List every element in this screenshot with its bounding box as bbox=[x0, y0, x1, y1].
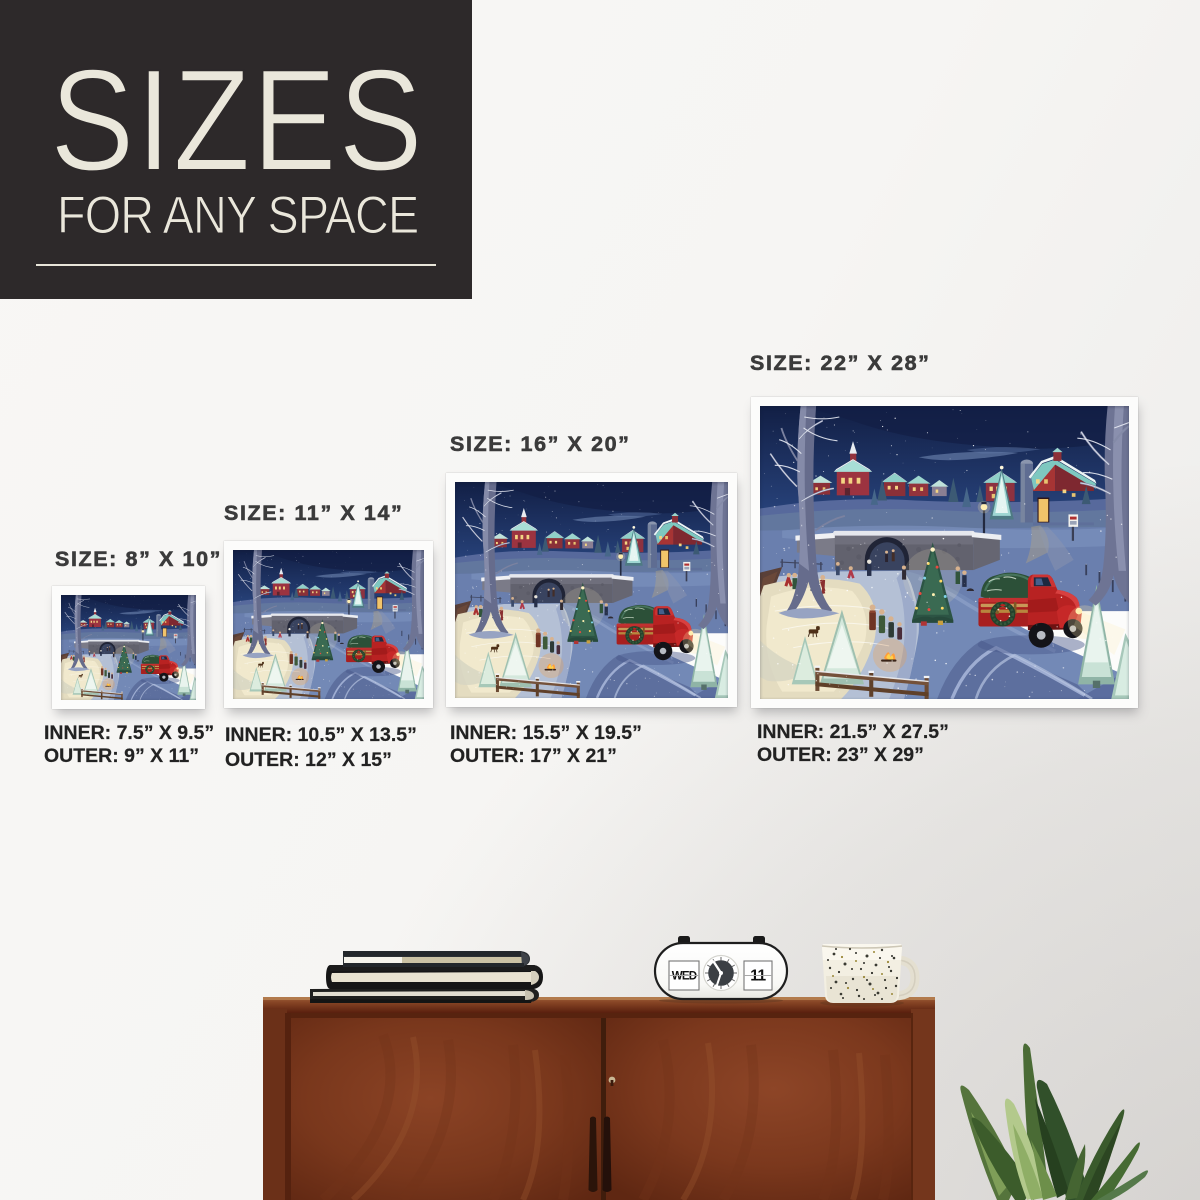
svg-text:WED: WED bbox=[672, 971, 697, 983]
